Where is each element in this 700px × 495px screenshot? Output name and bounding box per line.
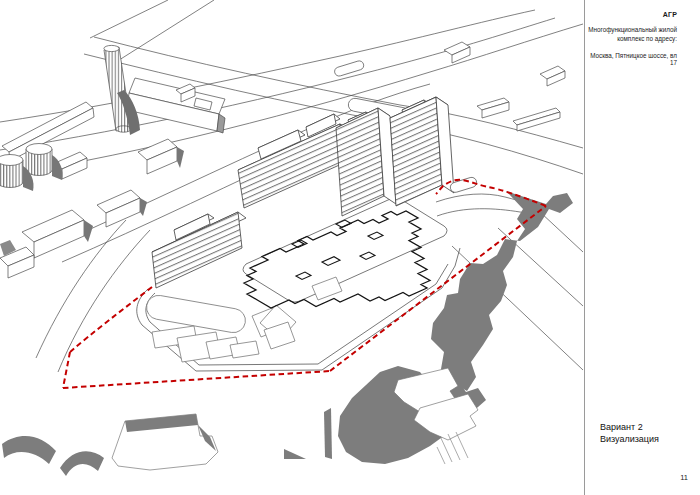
presentation-sheet: АГР Многофункциональный жилой комплекс п… — [0, 0, 700, 495]
drawing-background — [0, 0, 584, 495]
page-number: 11 — [680, 473, 688, 482]
visualization-canvas — [0, 0, 584, 495]
project-name-line-2: комплекс по адресу: — [585, 34, 677, 43]
variant-label: Вариант 2 — [600, 421, 659, 433]
project-header: АГР Многофункциональный жилой комплекс п… — [585, 11, 677, 66]
project-name-line-1: Многофункциональный жилой — [585, 25, 677, 34]
context-sliver — [324, 408, 332, 459]
project-stamp: АГР — [585, 11, 677, 18]
site-axonometric-drawing — [0, 0, 584, 495]
project-address: Москва, Пятницкое шоссе, вл 17 — [585, 52, 677, 66]
sheet-caption: Вариант 2 Визуализация — [600, 421, 659, 445]
sidebar-title-block: АГР Многофункциональный жилой комплекс п… — [584, 0, 700, 495]
view-type-label: Визуализация — [600, 433, 659, 445]
